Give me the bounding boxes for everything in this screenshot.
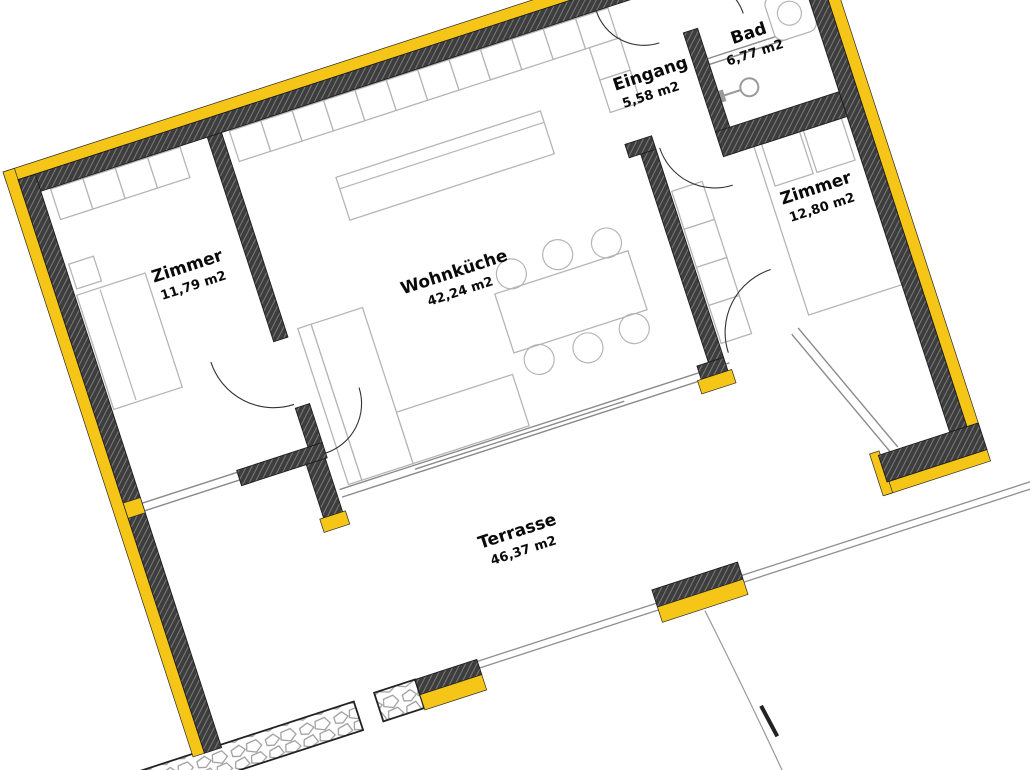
floor-plan-canvas: Zimmer 11,79 m2 Wohnküche 42,24 m2 Einga… xyxy=(0,0,1030,770)
floor-plan-drawing: Zimmer 11,79 m2 Wohnküche 42,24 m2 Einga… xyxy=(0,0,1030,770)
